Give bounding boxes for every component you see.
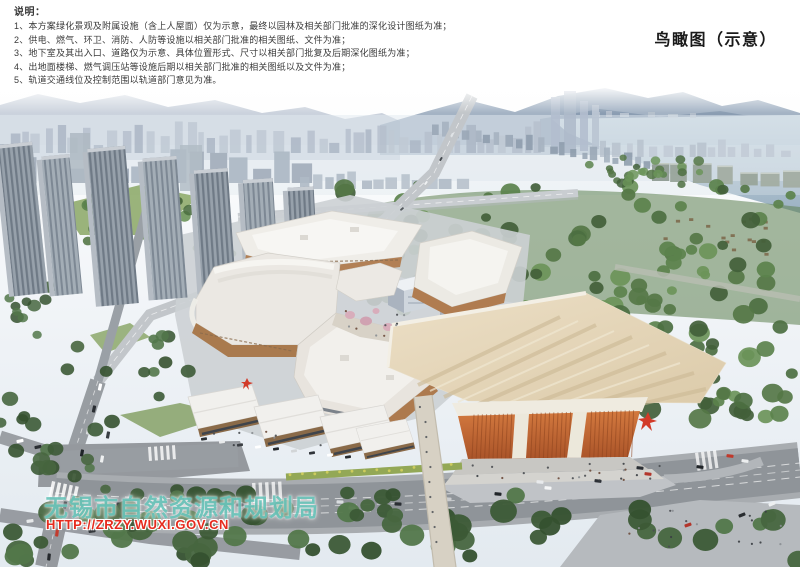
note-item: 2、供电、燃气、环卫、消防、人防等设施以相关部门批准的相关图纸、文件为准； xyxy=(14,34,594,48)
note-item: 3、地下室及其出入口、道路仅为示意、具体位置形式、尺寸以相关部门批复及后期深化图… xyxy=(14,47,594,61)
note-item: 1、本方案绿化景观及附属设施（含上人屋面）仅为示意，最终以园林及相关部门批准的深… xyxy=(14,20,594,34)
notes-heading: 说明： xyxy=(14,6,594,20)
notes-block: 说明： 1、本方案绿化景观及附属设施（含上人屋面）仅为示意，最终以园林及相关部门… xyxy=(14,6,594,88)
watermark-url: HTTP://ZRZY.WUXI.GOV.CN xyxy=(46,517,229,532)
note-item: 4、出地面楼梯、燃气调压站等设施后期以相关部门批准的相关图纸以及文件为准； xyxy=(14,61,594,75)
plan-sheet: 说明： 1、本方案绿化景观及附属设施（含上人屋面）仅为示意，最终以园林及相关部门… xyxy=(0,0,800,567)
page-title: 鸟瞰图（示意） xyxy=(654,26,777,50)
